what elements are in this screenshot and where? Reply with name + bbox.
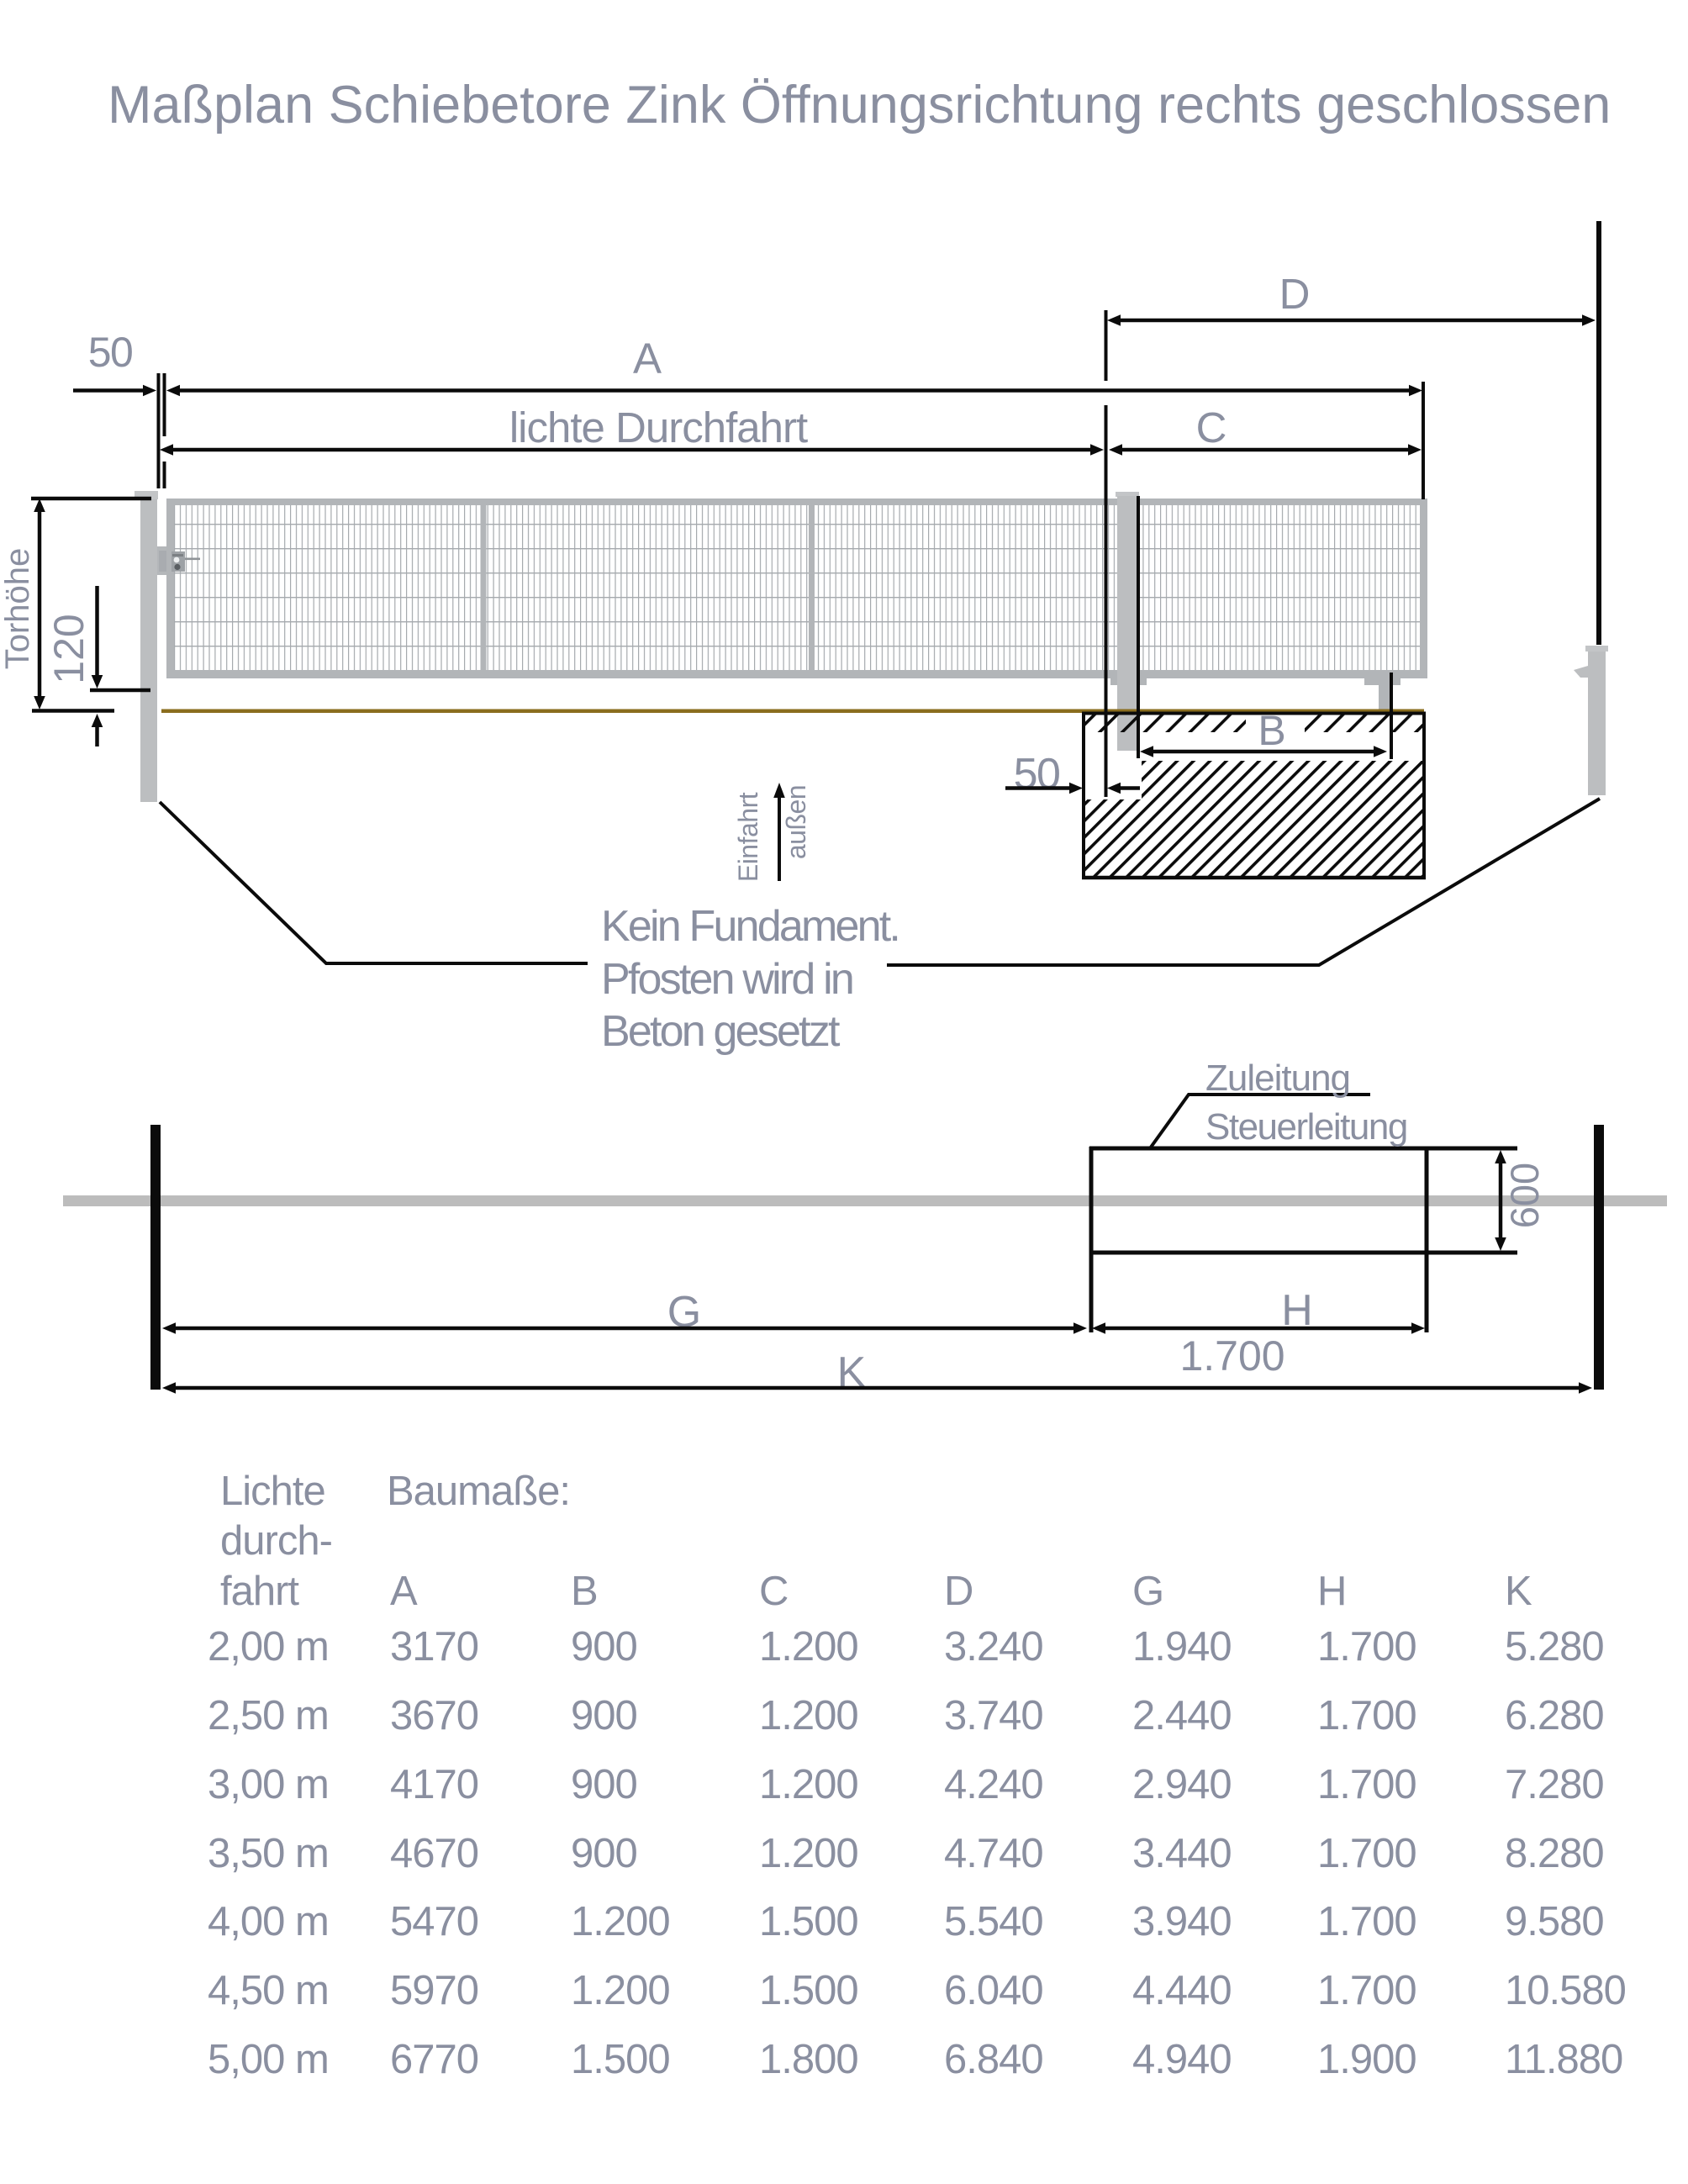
svg-text:Kein Fundament.: Kein Fundament. xyxy=(601,902,899,951)
svg-text:lichte Durchfahrt: lichte Durchfahrt xyxy=(509,404,808,451)
svg-text:11.880: 11.880 xyxy=(1505,2037,1622,2082)
svg-text:4.940: 4.940 xyxy=(1132,2037,1232,2082)
svg-text:10.580: 10.580 xyxy=(1505,1968,1626,2013)
svg-text:2.940: 2.940 xyxy=(1132,1762,1232,1807)
svg-text:fahrt: fahrt xyxy=(220,1569,299,1614)
svg-text:1.700: 1.700 xyxy=(1317,1762,1416,1807)
svg-text:4.240: 4.240 xyxy=(944,1762,1043,1807)
svg-text:1.940: 1.940 xyxy=(1132,1624,1232,1670)
svg-text:3.740: 3.740 xyxy=(944,1693,1043,1738)
svg-text:900: 900 xyxy=(571,1762,637,1807)
svg-text:Lichte: Lichte xyxy=(220,1469,325,1514)
svg-text:4.440: 4.440 xyxy=(1132,1968,1232,2013)
svg-text:5470: 5470 xyxy=(390,1899,478,1944)
svg-text:Pfosten wird in: Pfosten wird in xyxy=(601,955,852,1004)
svg-text:1.700: 1.700 xyxy=(1179,1332,1284,1380)
svg-text:4,50 m: 4,50 m xyxy=(208,1968,329,2013)
svg-text:2.440: 2.440 xyxy=(1132,1693,1232,1738)
svg-text:1.700: 1.700 xyxy=(1317,1831,1416,1876)
svg-text:4.740: 4.740 xyxy=(944,1831,1043,1876)
svg-text:C: C xyxy=(1196,404,1227,451)
svg-text:K: K xyxy=(837,1348,867,1397)
svg-text:2,00 m: 2,00 m xyxy=(208,1624,329,1670)
svg-text:A: A xyxy=(390,1569,418,1614)
svg-text:1.500: 1.500 xyxy=(571,2037,670,2082)
svg-text:1.200: 1.200 xyxy=(571,1968,670,2013)
svg-text:1.800: 1.800 xyxy=(759,2037,858,2082)
svg-text:Zuleitung: Zuleitung xyxy=(1205,1058,1350,1099)
svg-text:9.580: 9.580 xyxy=(1505,1899,1604,1944)
svg-text:8.280: 8.280 xyxy=(1505,1831,1604,1876)
svg-text:4670: 4670 xyxy=(390,1831,478,1876)
svg-text:600: 600 xyxy=(1502,1163,1547,1228)
svg-text:C: C xyxy=(759,1569,788,1614)
svg-text:5.540: 5.540 xyxy=(944,1899,1043,1944)
svg-text:Einfahrt: Einfahrt xyxy=(733,792,763,882)
svg-text:3,50 m: 3,50 m xyxy=(208,1831,329,1876)
svg-text:Steuerleitung: Steuerleitung xyxy=(1205,1106,1407,1147)
svg-text:außen: außen xyxy=(781,785,811,859)
svg-text:2,50 m: 2,50 m xyxy=(208,1693,329,1738)
svg-text:3.940: 3.940 xyxy=(1132,1899,1232,1944)
svg-text:1.200: 1.200 xyxy=(759,1831,858,1876)
svg-text:3170: 3170 xyxy=(390,1624,478,1670)
svg-text:A: A xyxy=(633,335,662,382)
svg-text:4,00 m: 4,00 m xyxy=(208,1899,329,1944)
svg-text:1.700: 1.700 xyxy=(1317,1899,1416,1944)
svg-text:6.280: 6.280 xyxy=(1505,1693,1604,1738)
svg-text:Baumaße:: Baumaße: xyxy=(387,1469,570,1514)
svg-text:1.200: 1.200 xyxy=(759,1624,858,1670)
svg-text:900: 900 xyxy=(571,1831,637,1876)
svg-text:5.280: 5.280 xyxy=(1505,1624,1604,1670)
svg-text:6770: 6770 xyxy=(390,2037,478,2082)
svg-text:900: 900 xyxy=(571,1693,637,1738)
svg-text:4170: 4170 xyxy=(390,1762,478,1807)
svg-text:900: 900 xyxy=(571,1624,637,1670)
svg-text:3.240: 3.240 xyxy=(944,1624,1043,1670)
svg-text:50: 50 xyxy=(1014,750,1060,799)
svg-text:1.200: 1.200 xyxy=(759,1693,858,1738)
svg-text:7.280: 7.280 xyxy=(1505,1762,1604,1807)
svg-text:1.900: 1.900 xyxy=(1317,2037,1416,2082)
svg-text:3670: 3670 xyxy=(390,1693,478,1738)
svg-text:durch-: durch- xyxy=(220,1518,332,1564)
svg-text:120: 120 xyxy=(45,614,92,683)
svg-text:3.440: 3.440 xyxy=(1132,1831,1232,1876)
svg-text:H: H xyxy=(1317,1569,1346,1614)
svg-text:1.700: 1.700 xyxy=(1317,1968,1416,2013)
svg-text:Maßplan Schiebetore Zink Öffnu: Maßplan Schiebetore Zink Öffnungsrichtun… xyxy=(108,76,1611,135)
svg-text:6.040: 6.040 xyxy=(944,1968,1043,2013)
svg-text:B: B xyxy=(571,1569,598,1614)
svg-text:50: 50 xyxy=(88,329,133,376)
svg-text:Torhöhe: Torhöhe xyxy=(0,548,36,670)
svg-text:1.500: 1.500 xyxy=(759,1968,858,2013)
svg-text:1.700: 1.700 xyxy=(1317,1624,1416,1670)
svg-text:3,00 m: 3,00 m xyxy=(208,1762,329,1807)
svg-text:G: G xyxy=(1132,1569,1163,1614)
svg-text:5,00 m: 5,00 m xyxy=(208,2037,329,2082)
svg-text:5970: 5970 xyxy=(390,1968,478,2013)
svg-text:Beton gesetzt: Beton gesetzt xyxy=(601,1007,841,1056)
svg-text:1.200: 1.200 xyxy=(759,1762,858,1807)
svg-text:D: D xyxy=(1279,270,1311,318)
svg-text:D: D xyxy=(944,1569,973,1614)
svg-text:K: K xyxy=(1505,1569,1532,1614)
svg-text:1.700: 1.700 xyxy=(1317,1693,1416,1738)
svg-text:6.840: 6.840 xyxy=(944,2037,1043,2082)
svg-text:1.500: 1.500 xyxy=(759,1899,858,1944)
svg-text:1.200: 1.200 xyxy=(571,1899,670,1944)
svg-text:B: B xyxy=(1258,707,1285,754)
